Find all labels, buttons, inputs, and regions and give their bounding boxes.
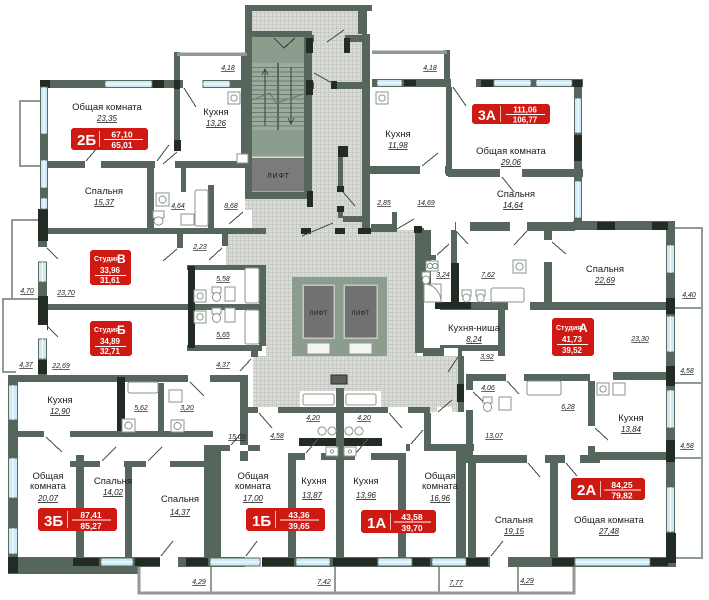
svg-text:Студия: Студия <box>94 256 119 263</box>
svg-text:17,00: 17,00 <box>243 494 264 503</box>
svg-text:13,84: 13,84 <box>621 425 642 434</box>
svg-text:2,23: 2,23 <box>192 244 207 251</box>
svg-text:23,35: 23,35 <box>96 114 118 123</box>
svg-text:комната: комната <box>235 481 272 492</box>
svg-text:Кухня: Кухня <box>618 413 643 424</box>
svg-text:4,40: 4,40 <box>682 292 696 299</box>
svg-text:3,20: 3,20 <box>180 405 194 412</box>
svg-text:5,65: 5,65 <box>216 332 230 339</box>
svg-text:Кухня: Кухня <box>353 476 378 487</box>
svg-text:Спальня: Спальня <box>497 189 535 200</box>
svg-text:2,85: 2,85 <box>376 200 391 207</box>
svg-text:14,69: 14,69 <box>417 200 435 207</box>
svg-text:65,01: 65,01 <box>111 140 133 150</box>
svg-text:4,20: 4,20 <box>357 415 371 422</box>
svg-text:12,90: 12,90 <box>50 407 71 416</box>
svg-text:14,02: 14,02 <box>103 488 124 497</box>
svg-text:14,37: 14,37 <box>170 508 191 517</box>
svg-text:Спальня: Спальня <box>85 186 123 197</box>
svg-text:Спальня: Спальня <box>495 515 533 526</box>
svg-text:34,89: 34,89 <box>100 337 121 346</box>
svg-text:4,37: 4,37 <box>19 362 34 369</box>
svg-text:8,68: 8,68 <box>224 203 238 210</box>
svg-text:Б: Б <box>117 323 126 337</box>
svg-text:11,98: 11,98 <box>388 141 408 150</box>
svg-text:комната: комната <box>30 481 67 492</box>
svg-text:ЛИФТ: ЛИФТ <box>267 173 290 180</box>
svg-text:16,96: 16,96 <box>430 494 451 503</box>
svg-text:29,06: 29,06 <box>500 158 522 167</box>
svg-text:14,64: 14,64 <box>503 201 524 210</box>
svg-text:1А: 1А <box>367 515 386 532</box>
svg-text:7,42: 7,42 <box>317 579 331 586</box>
svg-text:5,62: 5,62 <box>134 405 148 412</box>
svg-text:2Б: 2Б <box>77 132 96 149</box>
svg-text:33,96: 33,96 <box>100 266 121 275</box>
svg-text:Кухня-ниша: Кухня-ниша <box>448 323 501 334</box>
svg-text:Спальня: Спальня <box>586 264 624 275</box>
svg-text:13,87: 13,87 <box>302 491 323 500</box>
svg-text:7,77: 7,77 <box>449 580 464 587</box>
svg-text:111,06: 111,06 <box>513 106 537 115</box>
svg-text:39,65: 39,65 <box>288 521 310 531</box>
svg-text:13,26: 13,26 <box>206 119 227 128</box>
svg-text:В: В <box>117 252 126 266</box>
svg-text:3Б: 3Б <box>44 513 63 530</box>
svg-text:20,07: 20,07 <box>37 494 59 503</box>
svg-text:Студия: Студия <box>556 325 581 332</box>
svg-text:84,25: 84,25 <box>611 480 633 490</box>
svg-text:67,10: 67,10 <box>111 130 133 140</box>
svg-text:79,82: 79,82 <box>611 491 633 501</box>
svg-text:3,92: 3,92 <box>480 354 494 361</box>
svg-text:4,06: 4,06 <box>481 385 495 392</box>
svg-text:13,07: 13,07 <box>485 433 504 440</box>
svg-text:85,27: 85,27 <box>80 521 102 531</box>
svg-text:43,36: 43,36 <box>288 510 310 520</box>
svg-text:комната: комната <box>422 481 459 492</box>
svg-text:Студия: Студия <box>94 327 119 334</box>
svg-text:Спальня: Спальня <box>161 494 199 505</box>
svg-text:32,71: 32,71 <box>100 347 121 356</box>
svg-text:1Б: 1Б <box>252 513 271 530</box>
svg-text:Общая комната: Общая комната <box>72 102 142 113</box>
svg-text:4,37: 4,37 <box>216 362 231 369</box>
svg-text:А: А <box>579 321 588 335</box>
svg-text:4,20: 4,20 <box>306 415 320 422</box>
svg-text:Кухня: Кухня <box>47 395 72 406</box>
svg-text:22,69: 22,69 <box>51 363 70 370</box>
svg-text:Общая комната: Общая комната <box>574 515 644 526</box>
svg-text:106,77: 106,77 <box>513 116 538 125</box>
svg-text:4,58: 4,58 <box>270 433 284 440</box>
svg-text:19,15: 19,15 <box>504 527 525 536</box>
svg-text:6,28: 6,28 <box>561 404 575 411</box>
svg-text:23,30: 23,30 <box>630 336 649 343</box>
svg-text:15,09: 15,09 <box>228 434 246 441</box>
svg-text:Общая комната: Общая комната <box>476 146 546 157</box>
svg-text:4,18: 4,18 <box>221 65 235 72</box>
svg-text:39,70: 39,70 <box>401 523 423 533</box>
svg-text:87,41: 87,41 <box>80 510 102 520</box>
svg-text:7,62: 7,62 <box>481 272 495 279</box>
svg-text:41,73: 41,73 <box>562 335 583 344</box>
svg-text:4,18: 4,18 <box>423 65 437 72</box>
svg-text:Кухня: Кухня <box>385 129 410 140</box>
svg-text:Кухня: Кухня <box>301 476 326 487</box>
svg-text:4,29: 4,29 <box>520 578 534 585</box>
svg-text:4,58: 4,58 <box>680 368 694 375</box>
svg-text:Спальня: Спальня <box>94 476 132 487</box>
svg-text:8,24: 8,24 <box>466 335 482 344</box>
svg-text:4,58: 4,58 <box>680 443 694 450</box>
svg-text:4,64: 4,64 <box>171 203 185 210</box>
svg-text:43,58: 43,58 <box>401 512 423 522</box>
svg-text:23,70: 23,70 <box>56 290 75 297</box>
svg-text:39,52: 39,52 <box>562 346 583 355</box>
svg-text:4,29: 4,29 <box>192 579 206 586</box>
svg-text:4,70: 4,70 <box>20 288 34 295</box>
svg-text:3А: 3А <box>478 107 496 123</box>
svg-text:27,48: 27,48 <box>598 527 620 536</box>
svg-text:ЛИФТ: ЛИФТ <box>351 311 369 317</box>
svg-text:15,37: 15,37 <box>94 198 115 207</box>
svg-text:13,96: 13,96 <box>356 491 377 500</box>
svg-text:3,24: 3,24 <box>436 272 450 279</box>
svg-text:5,58: 5,58 <box>216 276 230 283</box>
svg-text:2А: 2А <box>577 482 596 499</box>
svg-text:22,69: 22,69 <box>594 276 616 285</box>
svg-text:Кухня: Кухня <box>203 107 228 118</box>
svg-text:ЛИФТ: ЛИФТ <box>309 311 327 317</box>
svg-text:31,61: 31,61 <box>100 276 121 285</box>
